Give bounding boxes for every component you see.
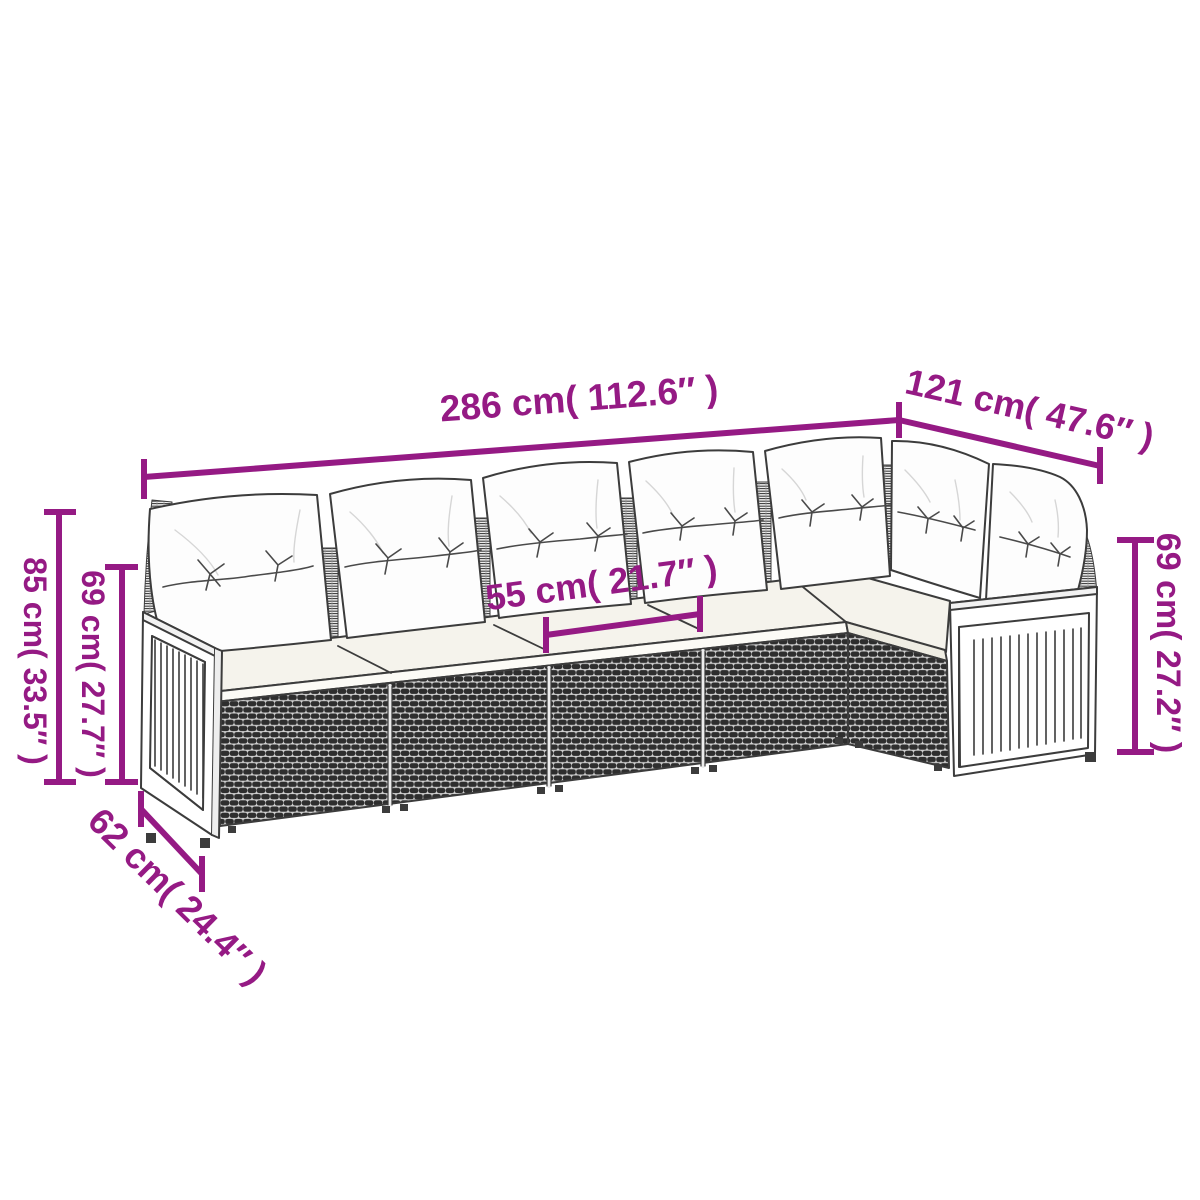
svg-text:69 cm( 27.2″ ): 69 cm( 27.2″ ) [1149, 533, 1187, 753]
svg-text:69 cm( 27.7″ ): 69 cm( 27.7″ ) [75, 570, 111, 777]
svg-text:85 cm( 33.5″ ): 85 cm( 33.5″ ) [17, 557, 53, 764]
